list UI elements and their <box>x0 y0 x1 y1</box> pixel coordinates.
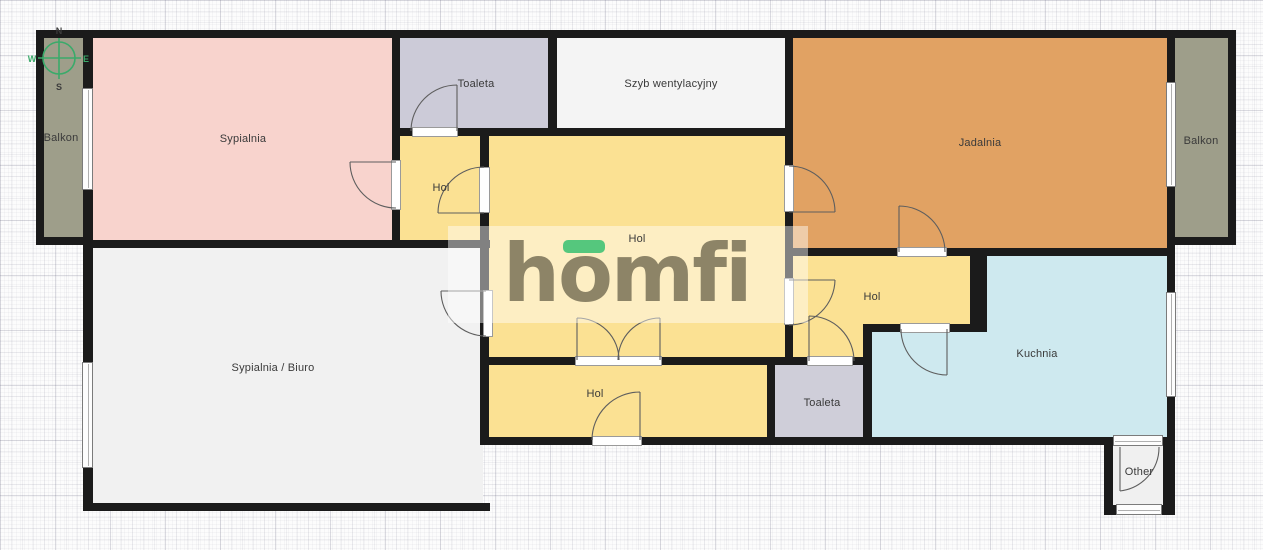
window <box>1166 82 1176 187</box>
room-label-balkon-left: Balkon <box>44 132 79 144</box>
compass-w: W <box>28 54 37 64</box>
room-kuchnia <box>869 329 990 440</box>
room-label-hol-small: Hol <box>432 182 449 194</box>
room-label-sypialnia-biuro: Sypialnia / Biuro <box>232 362 315 374</box>
window <box>82 362 93 468</box>
wall <box>83 503 490 511</box>
wall <box>863 324 872 445</box>
homfi-logo-macron <box>563 240 605 253</box>
window <box>1166 292 1176 397</box>
wall <box>392 30 400 248</box>
room-label-toaleta-top: Toaleta <box>458 78 495 90</box>
room-sypialnia-biuro <box>90 245 483 506</box>
wall <box>36 237 89 245</box>
room-label-toaleta-bottom: Toaleta <box>804 397 841 409</box>
room-label-szyb: Szyb wentylacyjny <box>624 78 717 90</box>
wall <box>480 437 1175 445</box>
door-sill <box>412 127 458 137</box>
wall <box>1228 30 1236 245</box>
door-sill <box>784 165 794 212</box>
room-label-jadalnia: Jadalnia <box>959 137 1002 149</box>
door-sill <box>575 356 662 366</box>
wall <box>767 358 775 445</box>
compass-s: S <box>56 82 62 92</box>
room-hol-bottom <box>486 362 770 440</box>
room-label-other: Other <box>1125 466 1154 478</box>
room-label-sypialnia: Sypialnia <box>220 133 266 145</box>
door-sill <box>592 436 642 446</box>
door-sill <box>479 167 490 213</box>
room-label-hol-bottom: Hol <box>586 388 603 400</box>
door-sill <box>807 356 853 366</box>
homfi-logo: homfi <box>503 234 751 314</box>
window <box>1116 504 1162 515</box>
room-label-balkon-right: Balkon <box>1184 135 1219 147</box>
compass-e: E <box>83 54 89 64</box>
window <box>82 88 93 190</box>
wall <box>548 30 557 136</box>
room-kuchnia <box>984 253 1170 440</box>
room-label-hol-right: Hol <box>863 291 880 303</box>
wall <box>83 240 490 248</box>
door-sill <box>897 247 947 257</box>
window <box>1113 435 1163 446</box>
compass-n: N <box>56 26 63 36</box>
wall <box>785 248 1175 256</box>
floor-plan: N S W E homfi Balkon Sypialnia Toaleta S… <box>0 0 1263 550</box>
room-hol-right <box>790 253 973 327</box>
wall <box>36 30 1236 38</box>
room-label-kuchnia: Kuchnia <box>1016 348 1057 360</box>
wall <box>970 248 987 332</box>
room-hol-right <box>790 324 863 360</box>
room-label-hol-main: Hol <box>628 233 645 245</box>
wall <box>1104 437 1113 515</box>
door-sill <box>900 323 950 333</box>
wall <box>1163 437 1175 515</box>
wall <box>1167 237 1236 245</box>
door-sill <box>391 160 401 210</box>
